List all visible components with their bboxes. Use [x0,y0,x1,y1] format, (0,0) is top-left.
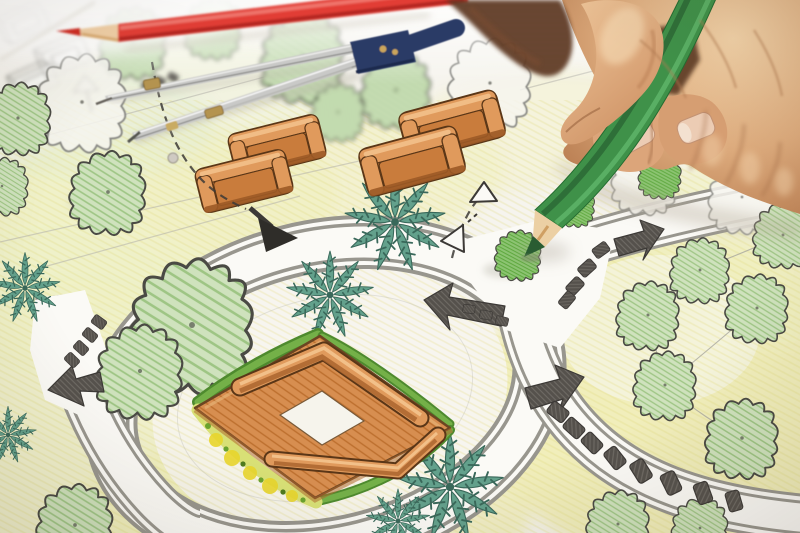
vignette-overlay [0,0,800,533]
photo-landscape-plan: Landscape architect hand-colors a garden… [0,0,800,533]
